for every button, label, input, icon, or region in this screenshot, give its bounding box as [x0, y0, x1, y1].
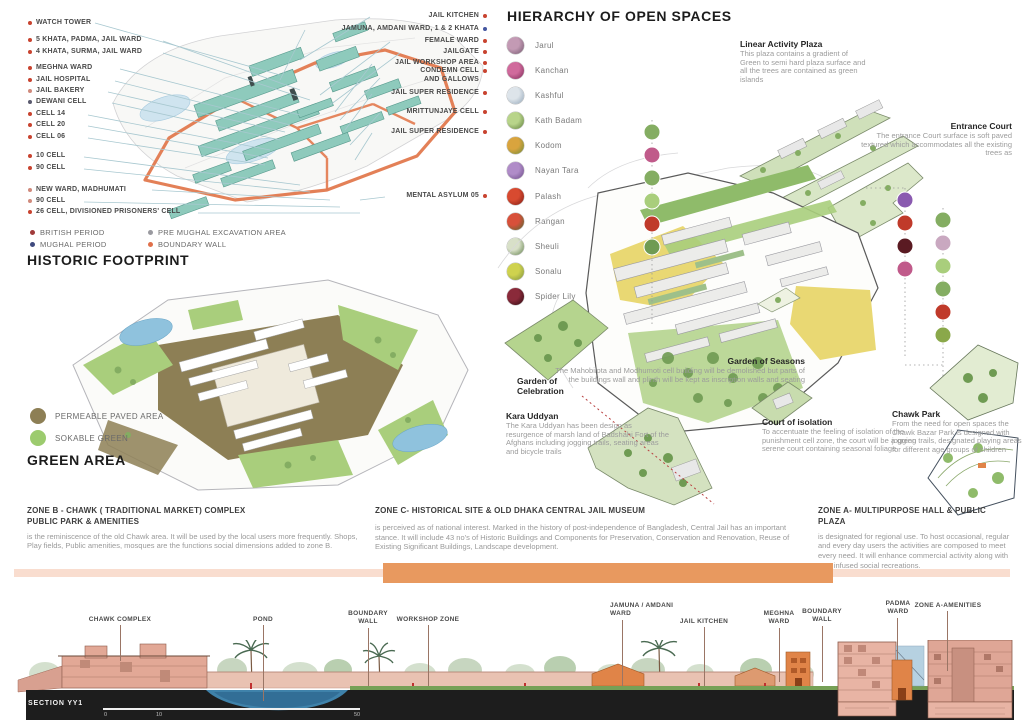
jail-label-90-cell: 90 CELL [28, 164, 65, 171]
section-label-meghna-ward: MEGHNA WARD [758, 610, 800, 626]
label-dot [28, 50, 32, 54]
plant-name: Jarul [535, 41, 554, 50]
annotation-kara-uddyan: Kara Uddyan The Kara Uddyan has been des… [506, 412, 671, 457]
label-dot [28, 154, 32, 158]
label-text: WATCH TOWER [36, 19, 91, 26]
label-text: MRITTUNJAYE CELL [406, 108, 479, 115]
section-leader-line [897, 618, 898, 660]
legend-swatch [30, 430, 46, 446]
label-dot [28, 66, 32, 70]
label-text: JAMUNA, AMDANI WARD, 1 & 2 KHATA [342, 25, 479, 32]
label-dot [483, 39, 487, 43]
jail-label-jailgate: JAILGATE [443, 48, 487, 55]
label-dot [28, 210, 32, 214]
label-dot [483, 27, 487, 31]
jail-label-meghna-ward: MEGHNA WARD [28, 64, 92, 71]
label-text: 26 CELL, DIVISIONED PRISONERS' CELL [36, 208, 180, 215]
zone-a-title: ZONE A- MULTIPURPOSE HALL & PUBLIC PLAZA [818, 506, 1016, 528]
plant-jarul: Jarul [507, 37, 554, 54]
jail-label-cell-14: CELL 14 [28, 110, 65, 117]
legend-permeable-paved: PERMEABLE PAVED AREA [30, 408, 164, 424]
scale-tick-0: 0 [104, 712, 107, 718]
section-label-pond: POND [240, 616, 286, 624]
jail-label-jail-bakery: JAIL BAKERY [28, 87, 85, 94]
jail-label-jail-hospital: JAIL HOSPITAL [28, 76, 90, 83]
label-text: CELL 20 [36, 121, 65, 128]
label-text: CONDEMN CELL AND GALLOWS [405, 67, 479, 85]
jail-label-dewani-cell: DEWANI CELL [28, 98, 86, 105]
label-text: JAIL HOSPITAL [36, 76, 90, 83]
label-text: JAIL BAKERY [36, 87, 85, 94]
legend-sokable-green: SOKABLE GREEN [30, 430, 128, 446]
zone-c-title: ZONE C- HISTORICAL SITE & OLD DHAKA CENT… [375, 506, 807, 517]
zone-b-body: is the reminiscence of the old Chawk are… [27, 532, 365, 552]
label-dot [483, 14, 487, 18]
jail-label-mental-asylum: MENTAL ASYLUM 05 [406, 192, 487, 199]
jail-label-90-cell-2: 90 CELL [28, 197, 65, 204]
label-text: JAIL SUPER RESIDENCE [391, 89, 479, 96]
label-dot [28, 38, 32, 42]
section-leader-line [368, 628, 369, 686]
label-text: JAIL WORKSHOP AREA [395, 59, 479, 66]
section-label-jamuna-amdani-ward: JAMUNA / AMDANI WARD [610, 602, 682, 618]
plant-photo [507, 37, 524, 54]
jail-label-4-khata: 4 KHATA, SURMA, JAIL WARD [28, 48, 142, 55]
zone-a-block: ZONE A- MULTIPURPOSE HALL & PUBLIC PLAZA… [818, 506, 1016, 571]
zone-b-title-line2: PUBLIC PARK & AMENITIES [27, 517, 139, 526]
label-text: NEW WARD, MADHUMATI [36, 186, 126, 193]
annotation-entrance-court: Entrance Court The entrance Court surfac… [856, 122, 1012, 158]
legend-dot [148, 242, 153, 247]
legend-pre-mughal: PRE MUGHAL EXCAVATION AREA [148, 228, 286, 237]
section-label-boundary-wall-left: BOUNDARY WALL [346, 610, 390, 626]
historic-footprint-title: HISTORIC FOOTPRINT [27, 252, 189, 268]
zone-b-block: ZONE B - CHAWK ( TRADITIONAL MARKET) COM… [27, 506, 365, 551]
label-text: 90 CELL [36, 164, 65, 171]
jail-label-mrittunjaye-cell: MRITTUNJAYE CELL [406, 108, 487, 115]
label-dot [28, 188, 32, 192]
label-text: MENTAL ASYLUM 05 [406, 192, 479, 199]
jail-label-new-ward: NEW WARD, MADHUMATI [28, 186, 126, 193]
jail-label-super-residence-1: JAIL SUPER RESIDENCE [391, 89, 487, 96]
section-name: SECTION YY1 [28, 700, 83, 707]
section-leader-line [779, 628, 780, 682]
legend-label: SOKABLE GREEN [55, 434, 128, 443]
annotation-body: The entrance Court surface is soft paved… [856, 132, 1012, 159]
legend-label: BOUNDARY WALL [158, 240, 226, 249]
zone-a-body: is designated for regional use. To host … [818, 532, 1016, 571]
presentation-board: WATCH TOWER 5 KHATA, PADMA, JAIL WARD 4 … [0, 0, 1024, 724]
label-dot [28, 89, 32, 93]
section-leader-line [120, 625, 121, 661]
section-leader-line [428, 625, 429, 686]
zone-b-title: ZONE B - CHAWK ( TRADITIONAL MARKET) COM… [27, 506, 365, 528]
label-dot [483, 50, 487, 54]
scale-tick-50: 50 [354, 712, 360, 718]
jail-label-cell-20: CELL 20 [28, 121, 65, 128]
label-text: JAIL SUPER RESIDENCE [391, 128, 479, 135]
label-dot [28, 21, 32, 25]
legend-label: PERMEABLE PAVED AREA [55, 412, 164, 421]
label-text: MEGHNA WARD [36, 64, 92, 71]
zone-c-block: ZONE C- HISTORICAL SITE & OLD DHAKA CENT… [375, 506, 807, 552]
annotation-chawk-park: Chawk Park From the need for open spaces… [892, 410, 1024, 455]
label-dot [28, 112, 32, 116]
legend-dot [30, 242, 35, 247]
jail-label-jail-kitchen: JAIL KITCHEN [429, 12, 488, 19]
scale-bar [103, 708, 360, 710]
jail-label-10-cell: 10 CELL [28, 152, 65, 159]
jail-label-watch-tower: WATCH TOWER [28, 19, 91, 26]
zone-c-body: is perceived as of national interest. Ma… [375, 523, 807, 552]
label-text: CELL 14 [36, 110, 65, 117]
scale-tick-10: 10 [156, 712, 162, 718]
annotation-linear-activity-plaza: Linear Activity Plaza This plaza contain… [740, 40, 870, 85]
label-text: 4 KHATA, SURMA, JAIL WARD [36, 48, 142, 55]
jail-label-workshop-area: JAIL WORKSHOP AREA [395, 59, 487, 66]
legend-dot [30, 230, 35, 235]
legend-british-period: BRITISH PERIOD [30, 228, 105, 237]
jail-label-cell-06: CELL 06 [28, 133, 65, 140]
legend-label: PRE MUGHAL EXCAVATION AREA [158, 228, 286, 237]
label-dot [28, 135, 32, 139]
legend-boundary-wall: BOUNDARY WALL [148, 240, 226, 249]
jail-label-female-ward: FEMALE WARD [425, 37, 487, 44]
section-leader-line [704, 627, 705, 686]
label-dot [28, 199, 32, 203]
green-area-title: GREEN AREA [27, 452, 126, 468]
annotation-body: This plaza contains a gradient of Green … [740, 50, 870, 85]
annotation-body: The Kara Uddyan has been design as resur… [506, 422, 671, 457]
label-text: FEMALE WARD [425, 37, 479, 44]
jail-label-26-cell: 26 CELL, DIVISIONED PRISONERS' CELL [28, 208, 180, 215]
annotation-garden-of-seasons: Garden of Seasons The Mahobilota and Mod… [555, 357, 805, 384]
jail-label-super-residence-2: JAIL SUPER RESIDENCE [391, 128, 487, 135]
annotation-body: The Mahobilota and Modhumoti cell buildi… [555, 367, 805, 385]
label-text: CELL 06 [36, 133, 65, 140]
section-drawing [0, 640, 1024, 724]
jail-label-5-khata: 5 KHATA, PADMA, JAIL WARD [28, 36, 142, 43]
section-leader-line [947, 611, 948, 671]
zone-bar-orange [383, 563, 833, 583]
label-text: 90 CELL [36, 197, 65, 204]
legend-label: BRITISH PERIOD [40, 228, 105, 237]
label-dot [28, 78, 32, 82]
legend-label: MUGHAL PERIOD [40, 240, 107, 249]
legend-dot [148, 230, 153, 235]
label-text: DEWANI CELL [36, 98, 86, 105]
hierarchy-title: HIERARCHY OF OPEN SPACES [507, 8, 732, 24]
legend-mughal-period: MUGHAL PERIOD [30, 240, 107, 249]
section-leader-line [822, 626, 823, 682]
historic-footprint-map [38, 270, 503, 505]
label-text: 10 CELL [36, 152, 65, 159]
label-text: 5 KHATA, PADMA, JAIL WARD [36, 36, 142, 43]
section-leader-line [263, 625, 264, 701]
jail-label-jamuna-ward: JAMUNA, AMDANI WARD, 1 & 2 KHATA [342, 25, 487, 32]
section-label-zone-a-amenities: ZONE A-AMENITIES [908, 602, 988, 610]
label-text: JAIL KITCHEN [429, 12, 480, 19]
section-label-workshop-zone: WORKSHOP ZONE [394, 616, 462, 624]
section-label-jail-kitchen: JAIL KITCHEN [672, 618, 736, 626]
section-label-boundary-wall-right: BOUNDARY WALL [800, 608, 844, 624]
annotation-body: From the need for open spaces the Chawk … [892, 420, 1024, 455]
section-label-chawk-complex: CHAWK COMPLEX [78, 616, 162, 624]
legend-swatch [30, 408, 46, 424]
label-dot [28, 166, 32, 170]
zone-b-title-line1: ZONE B - CHAWK ( TRADITIONAL MARKET) COM… [27, 506, 245, 515]
section-leader-line [622, 620, 623, 686]
label-dot [28, 100, 32, 104]
jail-label-condemn-cell: CONDEMN CELL AND GALLOWS [405, 67, 487, 85]
label-text: JAILGATE [443, 48, 479, 55]
label-dot [28, 123, 32, 127]
